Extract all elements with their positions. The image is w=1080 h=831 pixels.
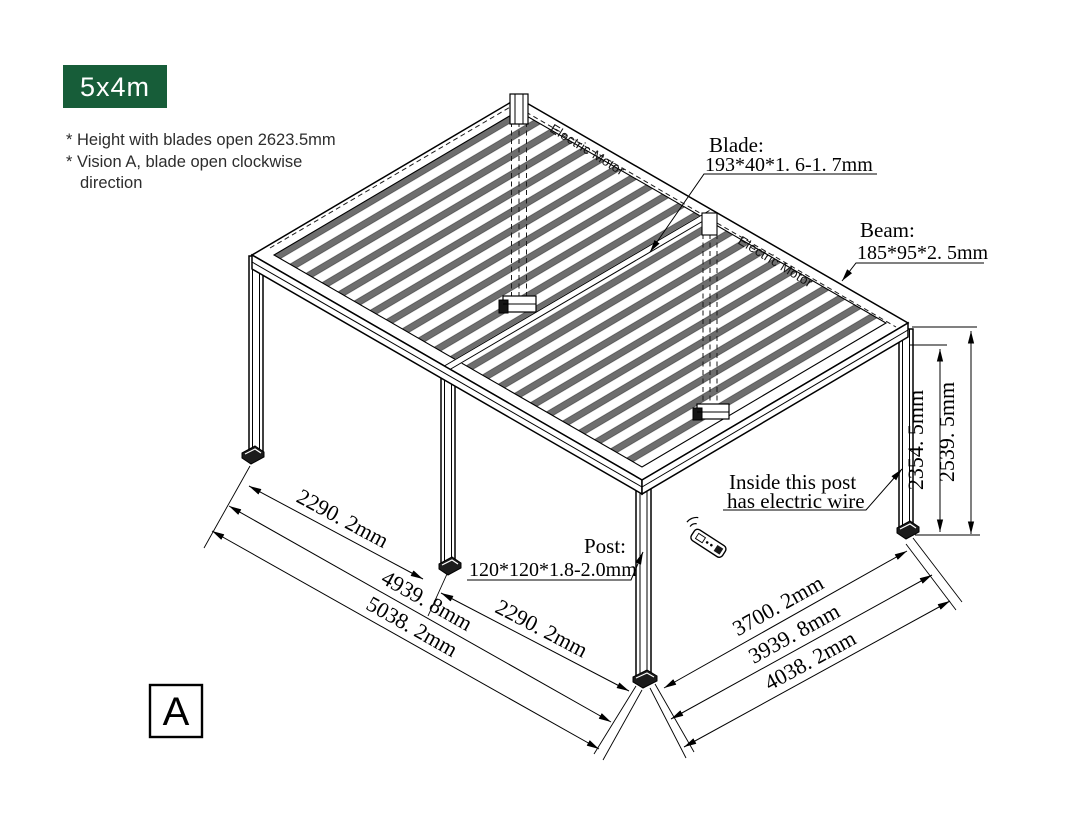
- dim-front-left-span: 2290. 2mm: [293, 484, 393, 553]
- dim-height-to-beam: 2354. 5mm: [903, 390, 928, 490]
- notes: * Height with blades open 2623.5mm * Vis…: [66, 131, 336, 192]
- size-badge-label: 5x4m: [80, 72, 150, 102]
- pergola-technical-drawing: Electric Motor Electric Motor 2290. 2mm …: [0, 0, 1080, 831]
- drawing-page: Electric Motor Electric Motor 2290. 2mm …: [0, 0, 1080, 831]
- beam-callout-spec: 185*95*2. 5mm: [857, 242, 989, 264]
- post-left: [249, 256, 263, 453]
- motor-bracket-2: [702, 213, 717, 235]
- beam-callout-title: Beam:: [860, 218, 915, 242]
- view-marker-label: A: [163, 690, 190, 734]
- note-line-1: * Height with blades open 2623.5mm: [66, 131, 336, 149]
- size-badge: 5x4m: [63, 65, 167, 108]
- remote-control-icon: [680, 514, 733, 559]
- note-line-2: * Vision A, blade open clockwise: [66, 153, 302, 171]
- blade-callout-spec: 193*40*1. 6-1. 7mm: [705, 154, 873, 176]
- post-front: [636, 481, 651, 678]
- post-middle: [441, 367, 455, 565]
- view-marker: A: [150, 685, 202, 737]
- dim-height-total: 2539. 5mm: [934, 382, 959, 482]
- motor-bracket-apex: [510, 94, 528, 124]
- note-line-3: direction: [80, 174, 142, 192]
- dim-front-left-span2: 2290. 2mm: [492, 594, 592, 663]
- wire-callout-line2: has electric wire: [727, 489, 865, 513]
- post-callout-spec: 120*120*1.8-2.0mm: [469, 559, 637, 581]
- post-callout-title: Post:: [584, 534, 626, 558]
